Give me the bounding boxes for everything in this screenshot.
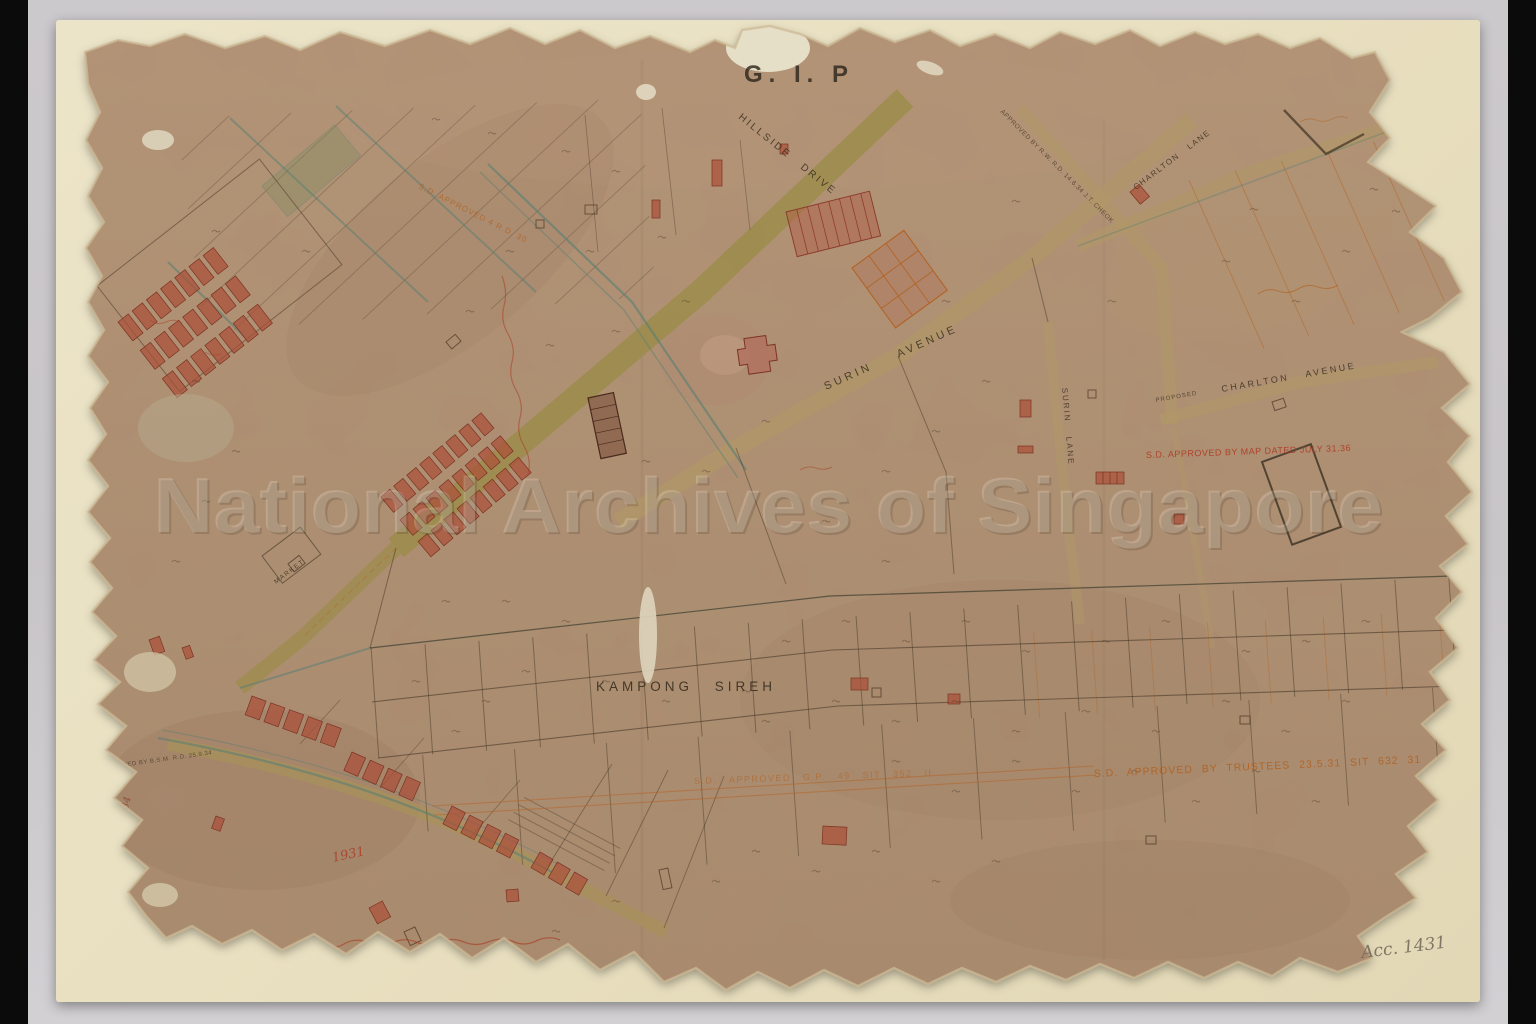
scanned-map-page: G. I. P HILLSIDE DRIVE SURIN AVENUE SURI… [0, 0, 1536, 1024]
pencil-number: 152 [197, 964, 223, 982]
watermark-text: National Archives of Singapore National … [153, 461, 1385, 551]
accession-number: Acc. 1431 [1358, 933, 1447, 964]
place-label-kampong-sireh: KAMPONG SIREH [596, 679, 776, 694]
map-artwork: G. I. P HILLSIDE DRIVE SURIN AVENUE SURI… [0, 0, 1536, 1024]
svg-text:National Archives of Singapore: National Archives of Singapore [153, 461, 1383, 549]
stamp-gip: G. I. P [744, 61, 854, 88]
margin-number: A.L. No. 14.34 [104, 795, 134, 869]
